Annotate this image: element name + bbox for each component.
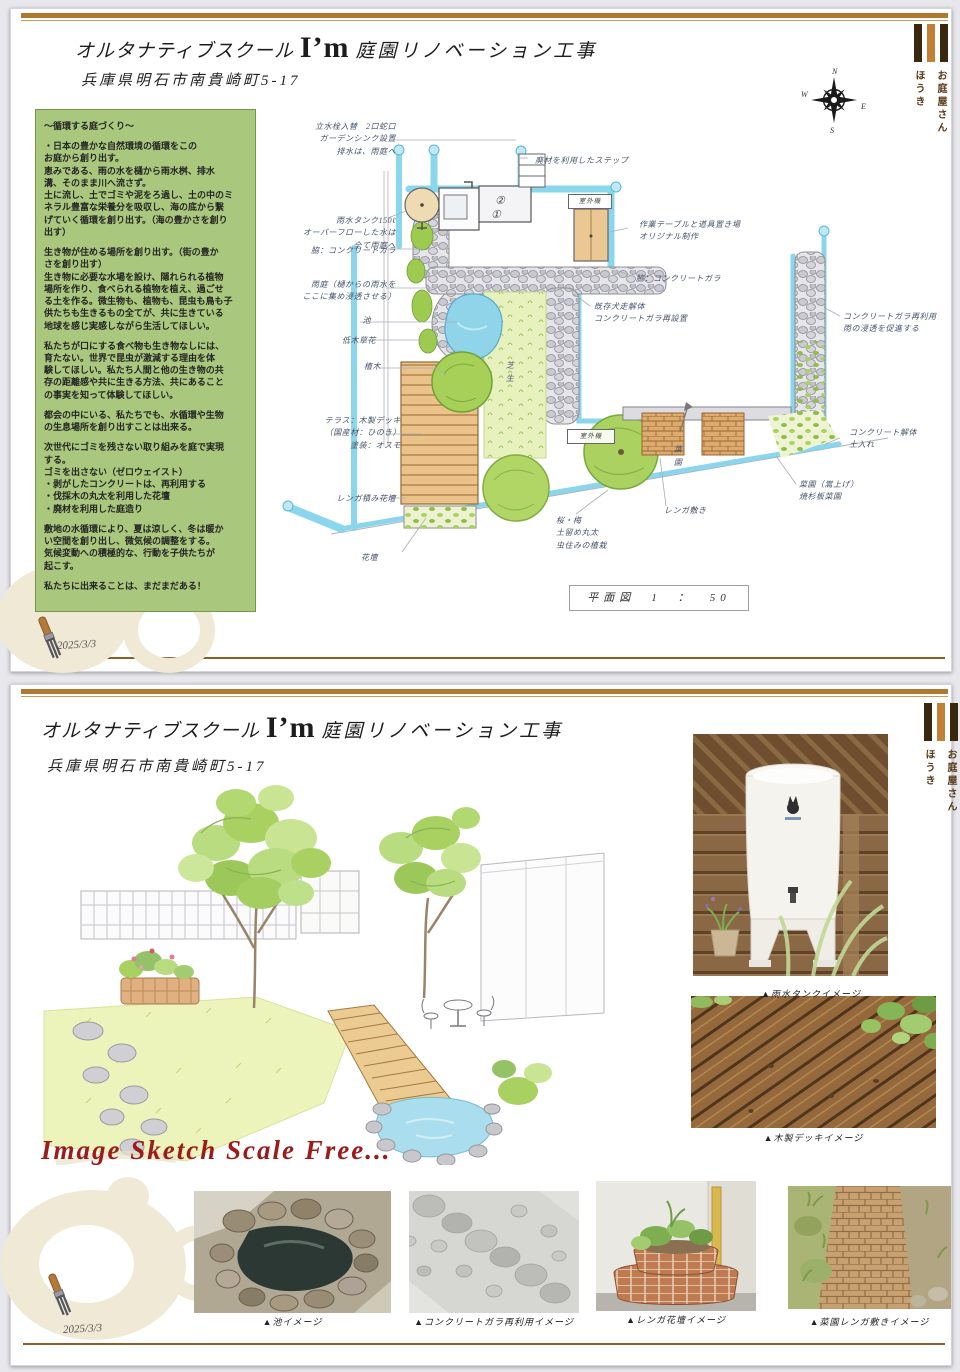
photo-rain-tank (693, 734, 888, 976)
photo-brick-path (788, 1186, 951, 1309)
svg-text:E: E (860, 102, 866, 111)
title-suffix: 庭園リノベーション工事 (356, 36, 598, 63)
garden-image-sketch (26, 773, 626, 1165)
label-gravel-reuse: コンクリートガラ再利用 雨の浸透を促進する (843, 311, 955, 336)
photo-concrete-reuse (409, 1191, 579, 1313)
top-rule (21, 13, 948, 18)
caption-rain-tank: ▲雨水タンクイメージ (711, 987, 911, 1000)
site-address: 兵庫県明石市南貴崎町5-17 (47, 755, 267, 776)
page-image-sketch: オルタナティブスクールI’m庭園リノベーション工事 兵庫県明石市南貴崎町5-17… (10, 684, 952, 1366)
concept-paragraph: 都会の中にいる、私たちでも、水循環や生物 の生息場所を創り出すことは出来る。 (44, 409, 247, 433)
document-canvas: { "doc": { "title_prefix": "オルタナティブスクール"… (0, 0, 960, 1372)
label-flower-bed: 花壇 (361, 552, 421, 564)
page-title: オルタナティブスクールI’m庭園リノベーション工事 (75, 31, 597, 65)
logo-text: お庭屋さん ほうき (894, 70, 948, 135)
label-outdoor-unit-2: 室外機 (567, 429, 615, 444)
label-rain-garden: 雨庭（樋からの雨水を ここに集め浸透させる） (256, 279, 396, 304)
title-prefix: オルタナティブスクール (75, 36, 294, 63)
label-lawn: 芝生 (503, 361, 515, 387)
caption-concrete-reuse: ▲コンクリートガラ再利用イメージ (399, 1315, 589, 1328)
top-rule (21, 689, 948, 694)
page-plan-sheet: オルタナティブスクールI’m庭園リノベーション工事 兵庫県明石市南貴崎町5-17… (10, 8, 952, 672)
caption-brick-planter: ▲レンガ花壇イメージ (596, 1313, 756, 1326)
title-school-name: I’m (266, 711, 316, 745)
photo-brick-planter (596, 1181, 756, 1311)
concept-text-box: ～循環する庭づくり～ ・日本の豊かな自然環境の循環をこの お庭から創り出す。 恵… (35, 109, 256, 612)
site-address: 兵庫県明石市南貴崎町5-17 (81, 69, 301, 90)
watermark-blob (107, 1177, 149, 1215)
label-work-table: 作業テーブルと道具置き場 オリジナル制作 (639, 219, 779, 244)
logo-shop-name: お庭屋さん (943, 749, 958, 814)
concept-paragraph: 私たちに出来ることは、まだまだある！ (44, 580, 247, 592)
title-prefix: オルタナティブスクール (41, 716, 260, 743)
concept-title: ～循環する庭づくり～ (44, 120, 247, 132)
concept-paragraph: 次世代にゴミを残さない取り組みを庭で実現 する。 ゴミを出さない（ゼロウェイスト… (44, 441, 247, 514)
label-tree: 植木 (311, 361, 381, 373)
label-brick-paving: レンガ敷き (664, 505, 744, 517)
top-rule-thin (21, 20, 948, 21)
logo-bars-icon (904, 703, 958, 741)
label-low-plants: 低木草花 (291, 335, 376, 347)
label-outdoor-unit-1: 室外機 (568, 194, 612, 209)
logo-bars-icon (894, 24, 948, 62)
logo-text: お庭屋さん ほうき (904, 749, 958, 814)
label-edge-right: 脇：コンクリートガラ (636, 273, 766, 285)
garden-fork-icon (33, 614, 65, 662)
label-concrete-soil: コンクリート解体 土入れ (849, 427, 954, 452)
concept-paragraph: ・日本の豊かな自然環境の循環をこの お庭から創り出す。 恵みである、雨の水を樋か… (44, 140, 247, 238)
logo-shop-name: お庭屋さん (933, 70, 948, 135)
title-school-name: I’m (300, 31, 350, 65)
label-dog-run: 既存犬走解体 コンクリートガラ再設置 (594, 301, 739, 326)
logo-brand-name: ほうき (911, 70, 926, 135)
label-step: 廃材を利用したステップ (535, 155, 655, 167)
concept-paragraph: 私たちが口にする食べ物も生き物なしには、 育たない。世界で昆虫が激減する理由を体… (44, 340, 247, 401)
logo-brand-name: ほうき (921, 749, 936, 814)
svg-text:S: S (830, 126, 834, 135)
top-rule-thin (21, 696, 948, 697)
page-title: オルタナティブスクールI’m庭園リノベーション工事 (41, 711, 563, 745)
concept-paragraph: 生き物が住める場所を創り出す。（街の豊か さを創り出す） 生き物に必要な水場を設… (44, 246, 247, 332)
company-logo: お庭屋さん ほうき (904, 703, 958, 814)
concept-paragraph: 敷地の水循環により、夏は涼しく、冬は暖か い空間を創り出し、微気候の調整をする。… (44, 523, 247, 572)
label-veg-garden: 菜園 (671, 445, 683, 471)
garden-fork-icon (43, 1271, 75, 1319)
label-edge-left: 脇：コンクリートガラ (266, 245, 396, 257)
label-tap: 立水栓入替 2口蛇口 ガーデンシンク設置 排水は、雨庭へ (261, 121, 396, 158)
date-page1: 2025/3/3 (57, 638, 97, 652)
caption-pond: ▲池イメージ (194, 1315, 391, 1328)
svg-text:W: W (801, 90, 809, 99)
label-pond: 池 (321, 315, 371, 327)
label-sakura-ume: 桜・梅 土留め丸太 虫住みの植栽 (556, 515, 651, 552)
svg-text:②: ② (495, 195, 506, 207)
label-brick-bed: レンガ積み花壇 (276, 493, 396, 505)
label-terrace: テラス：木製デッキ （国産材：ひのき） 塗装：オスモ (286, 415, 401, 452)
photo-wood-deck (691, 996, 936, 1128)
compass-rose-icon: N E S W (799, 65, 869, 135)
photo-pond (194, 1191, 391, 1313)
caption-wood-deck: ▲木製デッキイメージ (691, 1131, 936, 1144)
plan-scale-label: 平面図 1 ： 50 (569, 585, 749, 611)
bottom-rule (23, 1343, 945, 1345)
date-page2: 2025/3/3 (63, 1322, 103, 1336)
sketch-scale-caption: Image Sketch Scale Free... (41, 1135, 391, 1166)
company-logo: お庭屋さん ほうき (894, 24, 948, 135)
svg-text:①: ① (491, 209, 502, 221)
svg-text:N: N (831, 67, 838, 76)
caption-brick-path: ▲菜園レンガ敷きイメージ (778, 1315, 960, 1328)
label-veg-raised: 菜園（嵩上げ） 焼杉板菜園 (799, 479, 909, 504)
title-suffix: 庭園リノベーション工事 (322, 716, 564, 743)
